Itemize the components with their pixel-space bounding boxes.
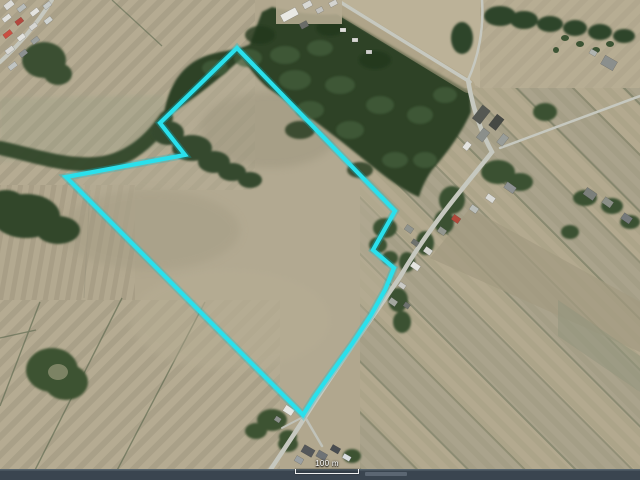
aerial-map: 100 m [0,0,640,480]
map-image [0,0,640,480]
highway [0,469,640,480]
